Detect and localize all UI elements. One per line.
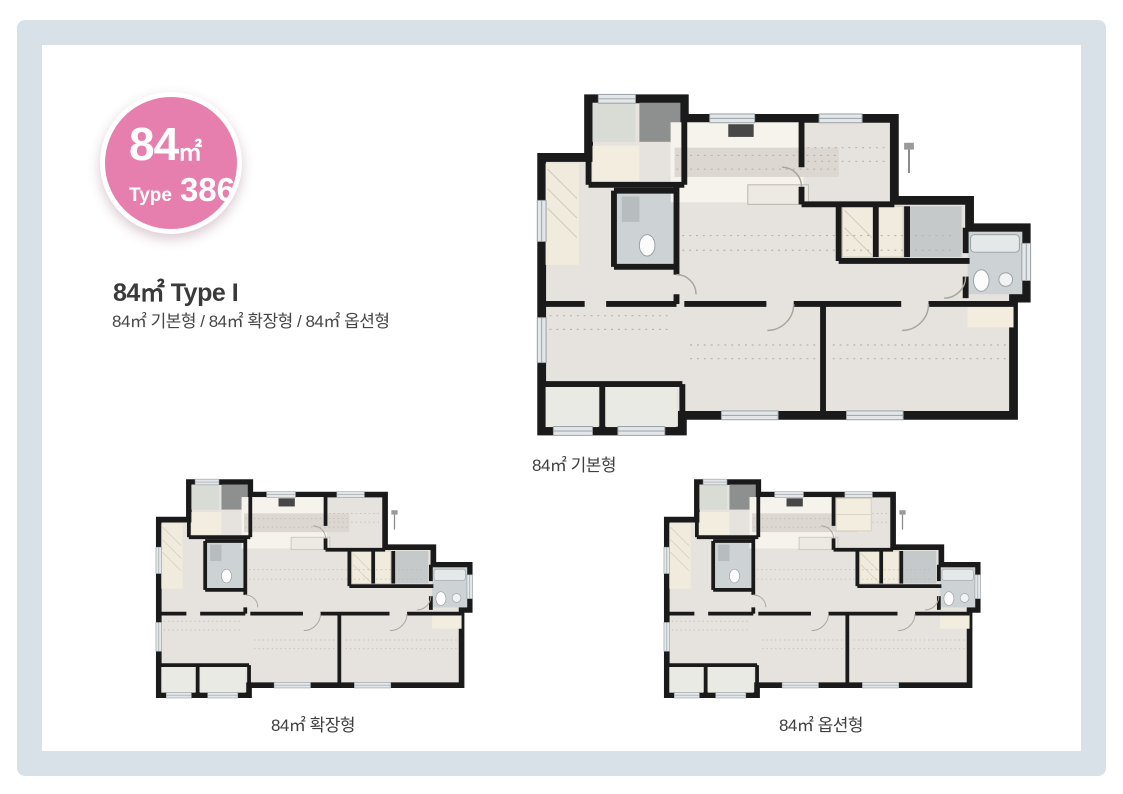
badge-area-line: 84㎡ bbox=[129, 121, 237, 167]
floorplan-expanded-caption: 84㎡ 확장형 bbox=[150, 711, 476, 736]
content-card: 84㎡ Type 386 84㎡ Type I 84㎡ 기본형 / 84㎡ 확장… bbox=[42, 45, 1081, 751]
floorplan-option: 84㎡ 옵션형 bbox=[658, 477, 984, 736]
floorplan-basic-image bbox=[528, 91, 1036, 443]
badge-area-unit: ㎡ bbox=[178, 139, 202, 166]
floorplan-option-image bbox=[658, 477, 984, 703]
page-frame: 84㎡ Type 386 84㎡ Type I 84㎡ 기본형 / 84㎡ 확장… bbox=[17, 20, 1106, 776]
badge-type-line: Type 386 bbox=[129, 173, 237, 206]
floorplan-option-caption: 84㎡ 옵션형 bbox=[658, 711, 984, 736]
badge-type-label: Type bbox=[129, 186, 172, 205]
floorplan-expanded-image bbox=[150, 477, 476, 703]
page-subtitle: 84㎡ 기본형 / 84㎡ 확장형 / 84㎡ 옵션형 bbox=[112, 307, 390, 332]
floorplan-basic: 84㎡ 기본형 bbox=[528, 91, 1036, 476]
badge-area-value: 84 bbox=[129, 118, 178, 170]
page-title: 84㎡ Type I bbox=[113, 273, 238, 309]
type-badge: 84㎡ Type 386 bbox=[100, 92, 242, 234]
page-root: { "page": { "background": "#ffffff", "fr… bbox=[0, 0, 1123, 794]
badge-type-number: 386 bbox=[180, 173, 235, 206]
floorplan-expanded: 84㎡ 확장형 bbox=[150, 477, 476, 736]
floorplan-basic-caption: 84㎡ 기본형 bbox=[528, 451, 1036, 476]
